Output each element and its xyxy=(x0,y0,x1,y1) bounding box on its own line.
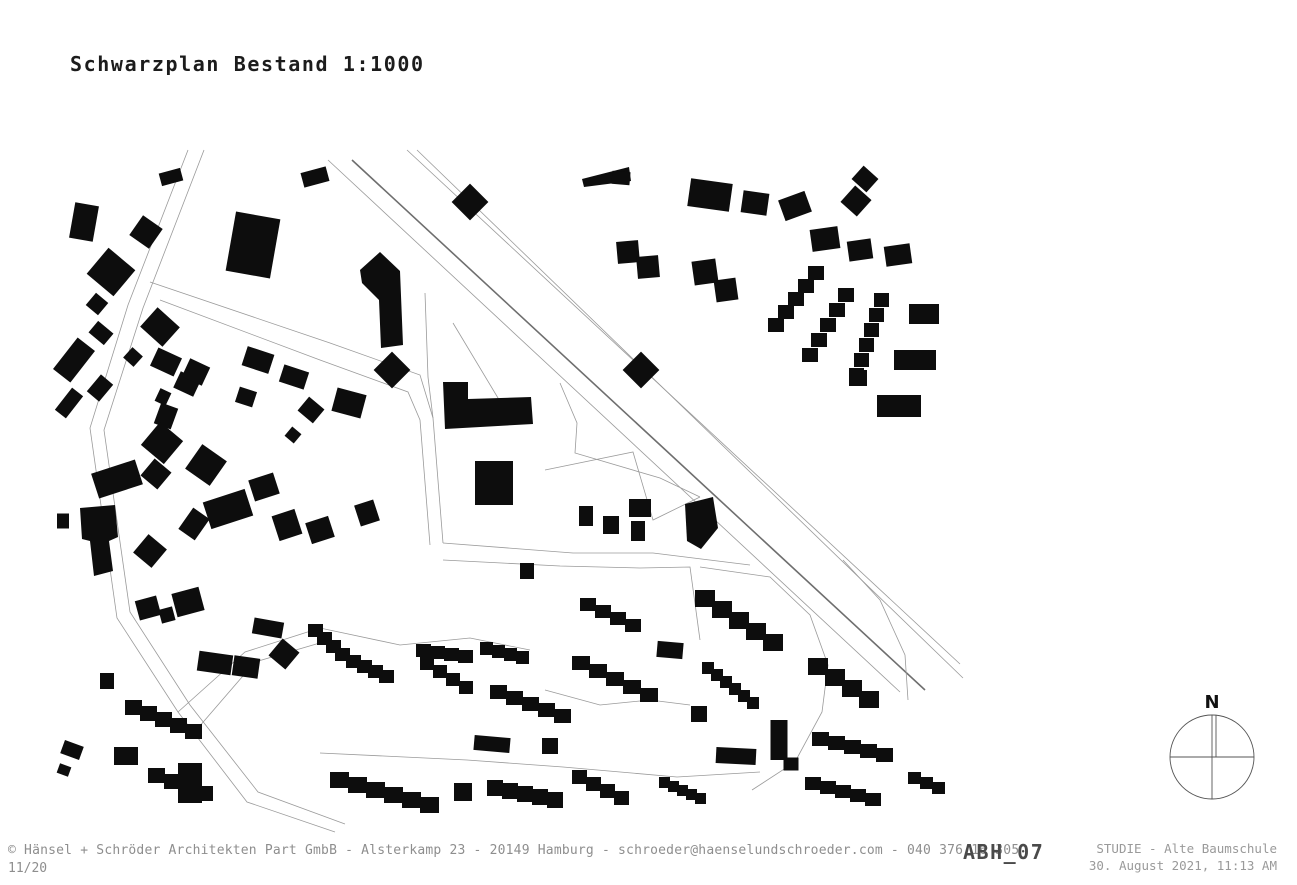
building xyxy=(285,427,302,444)
building xyxy=(348,777,367,793)
building xyxy=(802,348,818,362)
building xyxy=(226,212,281,279)
building xyxy=(272,509,303,541)
building xyxy=(170,718,187,733)
building xyxy=(487,780,503,796)
page-title: Schwarzplan Bestand 1:1000 xyxy=(70,52,425,76)
road-line xyxy=(843,560,908,700)
building xyxy=(185,724,202,739)
building xyxy=(586,777,601,791)
building xyxy=(141,422,183,464)
building xyxy=(248,473,280,502)
building xyxy=(87,374,113,401)
building xyxy=(203,489,253,529)
building xyxy=(141,459,172,490)
building xyxy=(516,651,529,664)
building xyxy=(232,655,261,678)
building xyxy=(572,770,587,784)
building xyxy=(197,651,233,676)
building xyxy=(685,497,718,549)
building xyxy=(185,444,227,486)
building xyxy=(859,691,879,708)
building xyxy=(123,347,143,367)
building xyxy=(458,650,473,663)
building xyxy=(279,364,309,389)
building xyxy=(849,370,867,386)
north-label: N xyxy=(1204,692,1219,713)
building xyxy=(691,706,707,722)
building xyxy=(443,382,533,429)
building xyxy=(844,740,861,754)
building xyxy=(446,673,460,686)
building xyxy=(812,732,829,746)
building xyxy=(631,521,645,541)
north-compass: N xyxy=(1170,692,1254,799)
building xyxy=(629,499,651,517)
building xyxy=(805,777,821,790)
building xyxy=(100,673,114,689)
road-line xyxy=(545,690,690,705)
building xyxy=(384,787,403,803)
building xyxy=(57,514,69,529)
building xyxy=(656,641,683,659)
building xyxy=(53,337,95,382)
building xyxy=(114,747,138,765)
building xyxy=(298,397,325,424)
building xyxy=(864,323,879,337)
building xyxy=(366,782,385,798)
building xyxy=(158,606,175,623)
building xyxy=(838,288,854,302)
road-line xyxy=(90,150,335,832)
building xyxy=(129,215,162,248)
building xyxy=(600,784,615,798)
building xyxy=(69,202,99,242)
building xyxy=(522,697,539,711)
building xyxy=(473,735,510,753)
building xyxy=(908,772,921,784)
building xyxy=(459,681,473,694)
building xyxy=(623,680,641,694)
building xyxy=(625,619,641,632)
building xyxy=(420,657,434,670)
building xyxy=(133,534,167,568)
building xyxy=(542,738,558,754)
building xyxy=(768,318,784,332)
building xyxy=(623,352,660,389)
building xyxy=(330,772,349,788)
building xyxy=(504,648,517,661)
building xyxy=(86,293,109,316)
building xyxy=(747,697,759,709)
building xyxy=(920,777,933,789)
building xyxy=(579,506,593,526)
building xyxy=(159,168,184,186)
building xyxy=(301,166,330,187)
building xyxy=(379,670,394,683)
building xyxy=(811,333,827,347)
drawing-sheet: N Schwarzplan Bestand 1:1000 © Hänsel + … xyxy=(0,0,1297,885)
building xyxy=(835,785,851,798)
building xyxy=(877,395,921,417)
building xyxy=(242,346,275,374)
building xyxy=(155,712,172,727)
road-line xyxy=(560,383,700,497)
building xyxy=(865,793,881,806)
building xyxy=(517,786,533,802)
building xyxy=(171,587,204,617)
building xyxy=(603,516,619,534)
road-line xyxy=(425,293,433,418)
building xyxy=(859,338,874,352)
building xyxy=(595,605,611,618)
road-line xyxy=(104,150,345,824)
building xyxy=(538,703,555,717)
building xyxy=(572,656,590,670)
building xyxy=(606,672,624,686)
building xyxy=(60,740,84,760)
building xyxy=(808,266,824,280)
building xyxy=(610,612,626,625)
building xyxy=(763,634,783,651)
building xyxy=(125,700,142,715)
building xyxy=(454,783,472,801)
building xyxy=(784,758,799,771)
building xyxy=(869,308,884,322)
building xyxy=(860,744,877,758)
building xyxy=(820,318,836,332)
building xyxy=(252,618,284,639)
building xyxy=(305,516,335,544)
building xyxy=(80,505,118,576)
project-info: STUDIE - Alte Baumschule 30. August 2021… xyxy=(1089,840,1277,874)
building xyxy=(433,665,447,678)
site-plan-canvas: N xyxy=(0,0,1297,885)
building xyxy=(884,243,913,266)
building xyxy=(416,644,431,657)
building xyxy=(616,240,640,264)
building xyxy=(614,791,629,805)
building xyxy=(741,190,770,215)
building xyxy=(547,792,563,808)
building xyxy=(360,252,403,348)
sheet-code: ABH_07 xyxy=(963,840,1044,864)
building xyxy=(932,782,945,794)
building xyxy=(164,774,181,789)
building xyxy=(909,304,939,324)
project-datetime: 30. August 2021, 11:13 AM xyxy=(1089,857,1277,874)
building xyxy=(788,292,804,306)
building xyxy=(140,706,157,721)
building xyxy=(687,178,732,212)
building xyxy=(828,736,845,750)
building xyxy=(829,303,845,317)
building xyxy=(55,388,83,419)
building xyxy=(492,645,505,658)
building xyxy=(640,688,658,702)
footer-copyright: © Hänsel + Schröder Architekten Part Gmb… xyxy=(8,843,1019,858)
road-line xyxy=(443,543,750,565)
building xyxy=(480,642,493,655)
building xyxy=(331,388,366,419)
building xyxy=(611,171,630,186)
building xyxy=(695,793,706,804)
building xyxy=(502,783,518,799)
building xyxy=(894,350,936,370)
building xyxy=(850,789,866,802)
building xyxy=(140,307,180,346)
building xyxy=(180,780,197,795)
building xyxy=(778,305,794,319)
building xyxy=(798,279,814,293)
building xyxy=(235,387,257,408)
building xyxy=(135,595,161,620)
building xyxy=(847,238,874,261)
building xyxy=(714,278,739,303)
building xyxy=(506,691,523,705)
building xyxy=(490,685,507,699)
building xyxy=(520,563,534,579)
building xyxy=(178,508,209,541)
building xyxy=(874,293,889,307)
building xyxy=(532,789,548,805)
building xyxy=(876,748,893,762)
building xyxy=(150,347,182,376)
building xyxy=(444,648,459,661)
building xyxy=(91,460,143,499)
building xyxy=(402,792,421,808)
building xyxy=(148,768,165,783)
building xyxy=(420,797,439,813)
road-line xyxy=(320,753,760,777)
building xyxy=(374,352,411,389)
road-line xyxy=(443,560,700,640)
building xyxy=(354,499,380,526)
building xyxy=(580,598,596,611)
project-title: STUDIE - Alte Baumschule xyxy=(1089,840,1277,857)
building xyxy=(778,191,812,221)
building xyxy=(771,720,788,760)
building xyxy=(636,255,660,279)
building xyxy=(589,664,607,678)
building xyxy=(716,747,757,765)
building xyxy=(196,786,213,801)
building xyxy=(89,321,114,345)
buildings-layer xyxy=(53,166,945,813)
roads-layer xyxy=(90,150,963,832)
building xyxy=(87,248,136,297)
footer-page-number: 11/20 xyxy=(8,861,47,876)
building xyxy=(554,709,571,723)
building xyxy=(475,461,513,505)
building xyxy=(854,353,869,367)
building xyxy=(57,763,72,777)
building xyxy=(810,226,841,252)
building xyxy=(820,781,836,794)
